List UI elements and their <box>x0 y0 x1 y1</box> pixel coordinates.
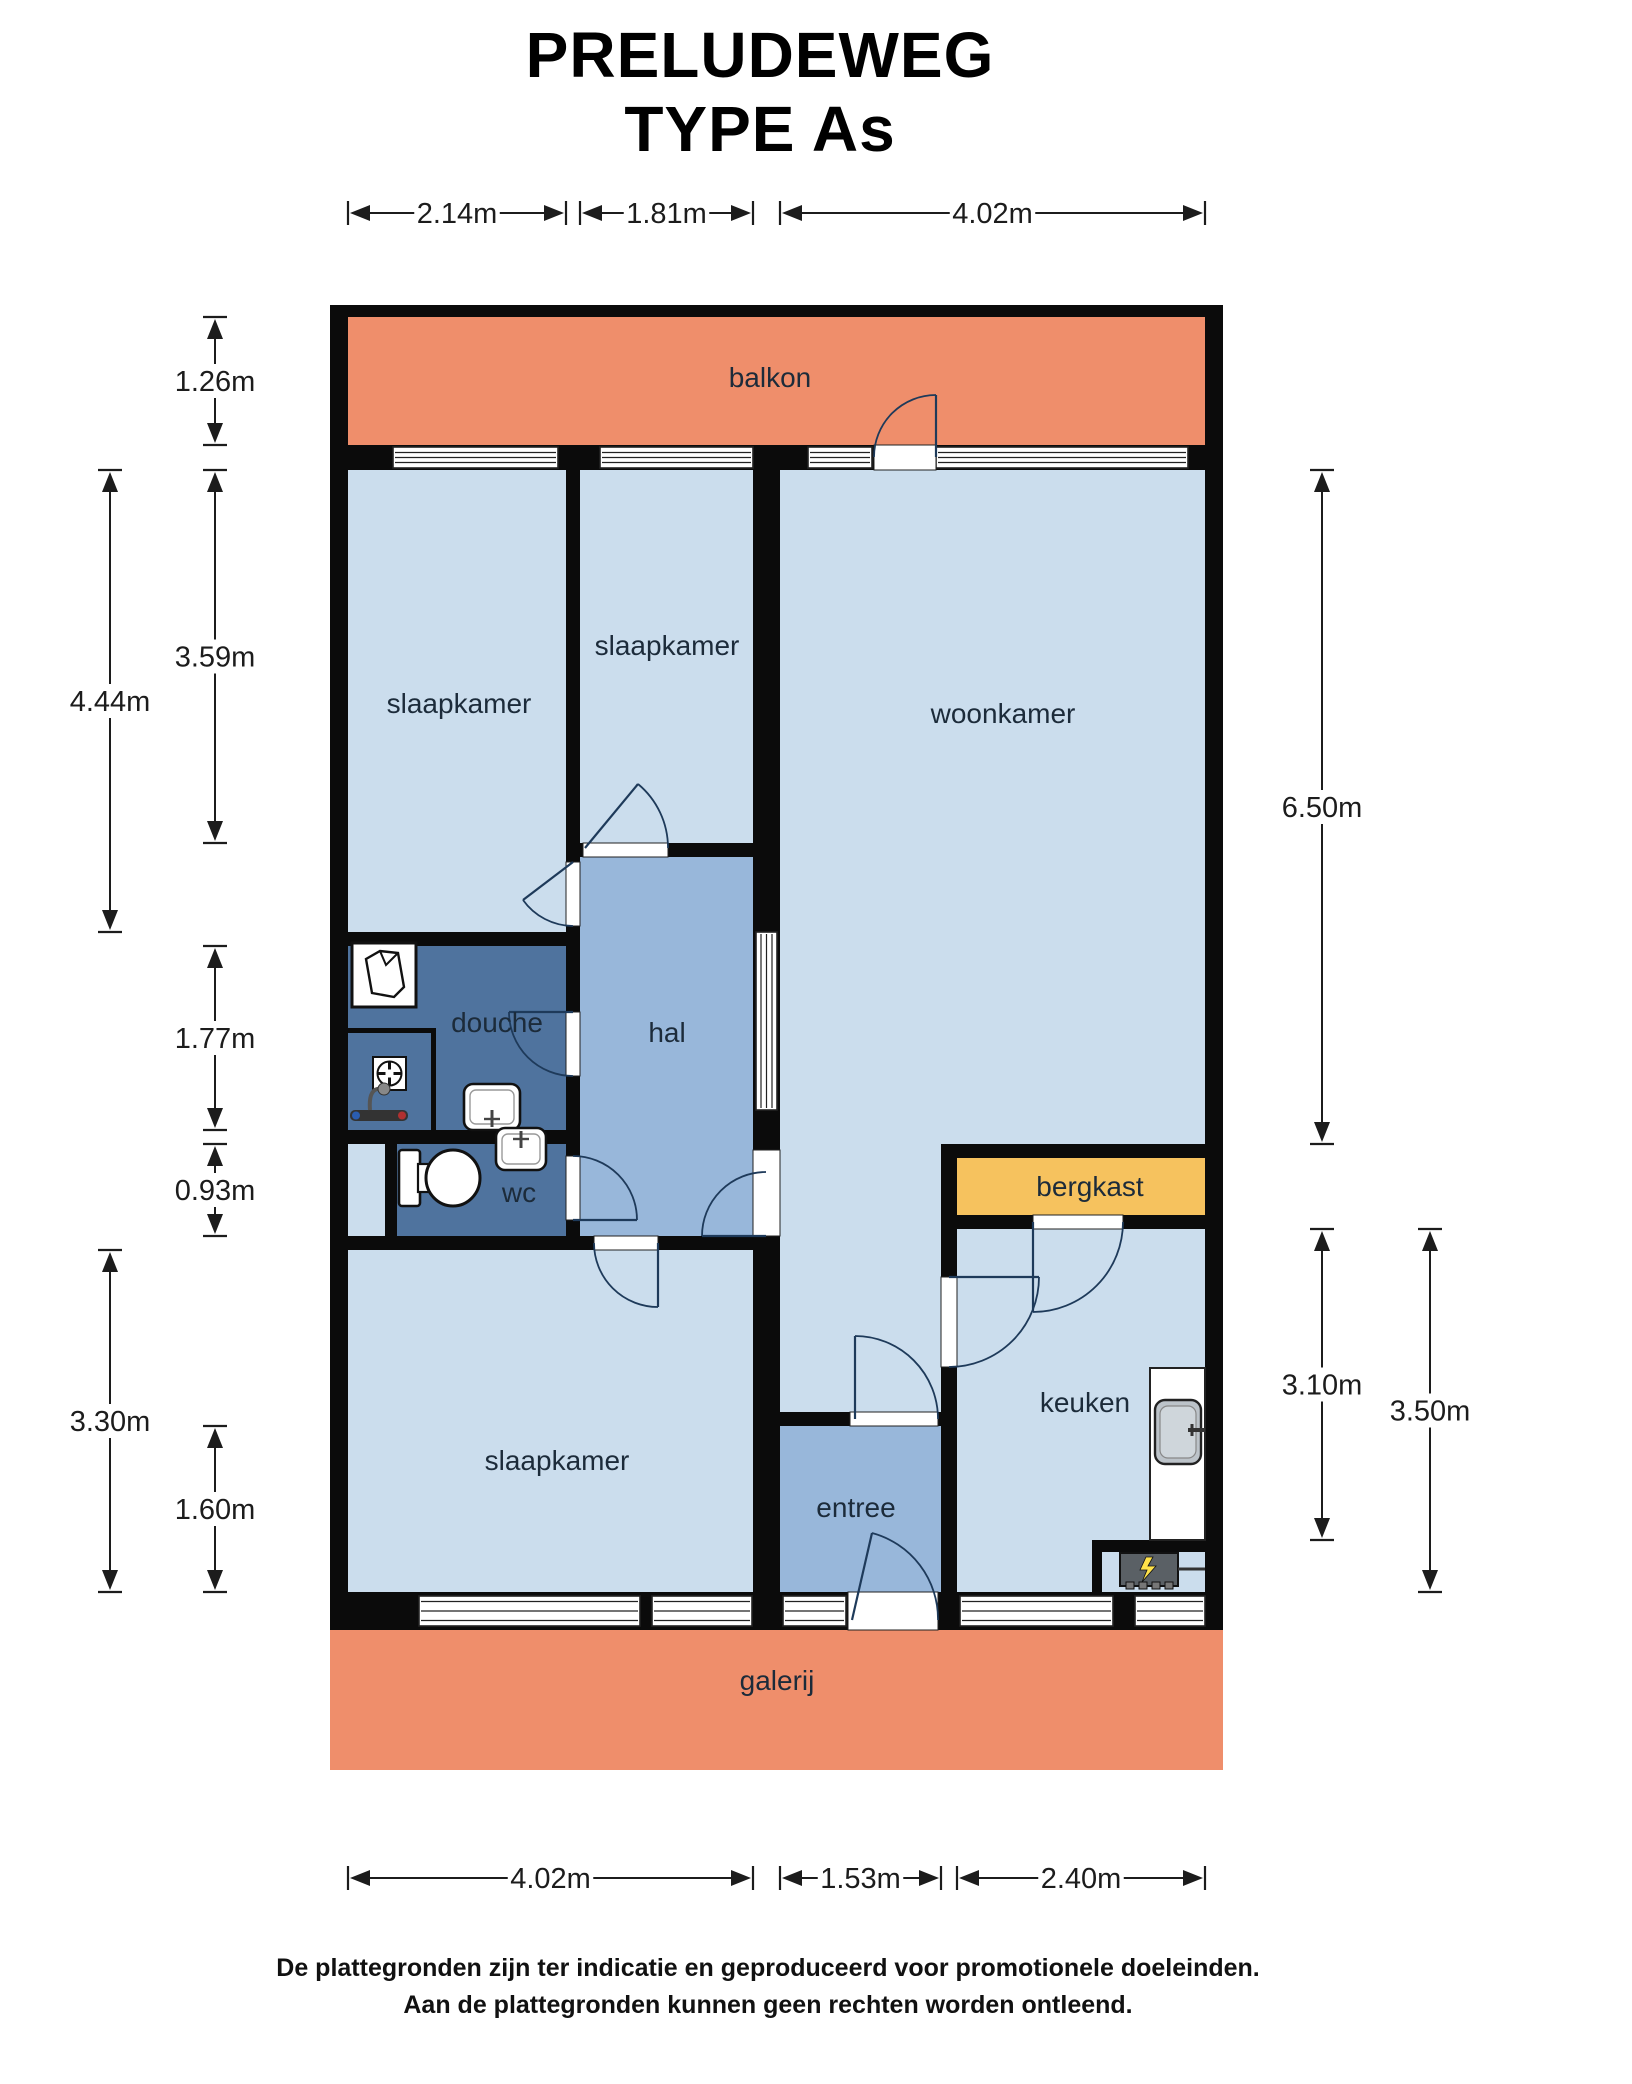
dimension-arrowhead <box>207 319 223 339</box>
dimension-arrowhead <box>350 205 370 221</box>
dimension-arrowhead <box>1422 1231 1438 1251</box>
dimension-label: 3.59m <box>175 642 256 674</box>
stove-knob <box>1165 1582 1173 1589</box>
dimension-arrowhead <box>1314 472 1330 492</box>
door-opening <box>583 843 668 857</box>
dimension-arrowhead <box>731 1870 751 1886</box>
label-keuken: keuken <box>1040 1387 1130 1418</box>
dimension-label: 2.14m <box>417 198 498 230</box>
dimension-label: 1.77m <box>175 1023 256 1055</box>
mixer-hot-cap <box>398 1112 406 1120</box>
dimension-label: 1.60m <box>175 1494 256 1526</box>
dimension-arrowhead <box>102 472 118 492</box>
wall <box>431 1028 436 1130</box>
door-opening <box>874 445 936 470</box>
wall <box>1205 305 1223 1630</box>
dimension-label: 3.30m <box>70 1406 151 1438</box>
dimension-label: 4.02m <box>952 198 1033 230</box>
door-opening <box>941 1277 957 1367</box>
disclaimer: De plattegronden zijn ter indicatie en g… <box>0 1950 1536 2024</box>
label-entree: entree <box>816 1492 895 1523</box>
wall <box>1092 1540 1205 1552</box>
dimension-arrowhead <box>782 1870 802 1886</box>
mixer-head <box>378 1083 390 1095</box>
dimension-arrowhead <box>207 948 223 968</box>
dimension-arrowhead <box>207 472 223 492</box>
door-opening <box>566 1012 580 1076</box>
floorplan-page: PRELUDEWEG TYPE As 2.14m1.81m4.02m4.02m1… <box>0 0 1632 2084</box>
label-hal: hal <box>648 1017 685 1048</box>
dimension-label: 1.26m <box>175 366 256 398</box>
dimension-arrowhead <box>1183 205 1203 221</box>
dimension-arrowhead <box>959 1870 979 1886</box>
dimension-arrowhead <box>1314 1231 1330 1251</box>
wall <box>566 470 580 862</box>
dimension-arrowhead <box>919 1870 939 1886</box>
dimension-arrowhead <box>731 205 751 221</box>
wall <box>753 470 780 932</box>
label-woonkamer: woonkamer <box>930 698 1076 729</box>
label-slaapkamer-midden: slaapkamer <box>595 630 740 661</box>
dimension-arrowhead <box>207 1570 223 1590</box>
label-slaapkamer-onder: slaapkamer <box>485 1445 630 1476</box>
dimension-arrowhead <box>207 1428 223 1448</box>
dimension-label: 2.40m <box>1041 1863 1122 1895</box>
dimension-label: 1.81m <box>626 198 707 230</box>
wall <box>658 1236 780 1250</box>
dimension-label: 0.93m <box>175 1175 256 1207</box>
dimension-label: 3.10m <box>1282 1370 1363 1402</box>
toilet-bowl <box>426 1150 480 1206</box>
dimension-arrowhead <box>207 1214 223 1234</box>
wall <box>330 1236 594 1250</box>
toilet-tank <box>399 1150 420 1206</box>
label-galerij: galerij <box>740 1665 815 1696</box>
dimension-arrowhead <box>102 910 118 930</box>
dimension-arrowhead <box>544 205 564 221</box>
dimension-label: 4.44m <box>70 686 151 718</box>
stove-knob <box>1126 1582 1134 1589</box>
door-opening <box>1033 1215 1123 1229</box>
wall <box>668 843 753 857</box>
dimension-label: 3.50m <box>1390 1396 1471 1428</box>
room-galerij <box>330 1630 1223 1770</box>
stove-knob <box>1152 1582 1160 1589</box>
stove-knob <box>1139 1582 1147 1589</box>
door-opening <box>566 1156 580 1220</box>
wall <box>348 1028 436 1033</box>
wall <box>941 1367 957 1592</box>
dimension-arrowhead <box>1422 1570 1438 1590</box>
room-slaapkamer-onder <box>348 1250 753 1592</box>
wall <box>941 1215 1033 1229</box>
dimension-arrowhead <box>582 205 602 221</box>
floor-plan-drawing: 2.14m1.81m4.02m4.02m1.53m2.40m4.44m3.30m… <box>0 0 1632 2084</box>
dimension-arrowhead <box>207 423 223 443</box>
dimension-label: 6.50m <box>1282 792 1363 824</box>
door-opening <box>753 1150 780 1236</box>
dimension-arrowhead <box>207 1108 223 1128</box>
wall <box>941 1144 1205 1158</box>
label-balkon: balkon <box>729 362 812 393</box>
wall <box>330 305 348 1630</box>
label-wc: wc <box>501 1177 536 1208</box>
label-bergkast: bergkast <box>1036 1171 1144 1202</box>
disclaimer-line2: Aan de plattegronden kunnen geen rechten… <box>0 1987 1536 2024</box>
wall <box>941 1144 957 1277</box>
mixer-cold-cap <box>352 1112 360 1120</box>
wall <box>385 1144 397 1236</box>
dimension-arrowhead <box>207 1146 223 1166</box>
dimension-arrowhead <box>1314 1518 1330 1538</box>
dimension-arrowhead <box>350 1870 370 1886</box>
wall <box>330 305 1223 317</box>
door-opening <box>850 1412 938 1426</box>
dimension-arrowhead <box>1314 1122 1330 1142</box>
label-slaapkamer-links: slaapkamer <box>387 688 532 719</box>
wall <box>566 1220 580 1236</box>
dimension-arrowhead <box>1183 1870 1203 1886</box>
door-opening <box>594 1236 658 1250</box>
label-douche: douche <box>451 1007 543 1038</box>
dimension-arrowhead <box>207 821 223 841</box>
wall <box>753 1236 780 1592</box>
wall <box>780 1412 850 1426</box>
dimension-arrowhead <box>102 1252 118 1272</box>
door-opening <box>848 1592 938 1630</box>
dimension-label: 1.53m <box>820 1863 901 1895</box>
disclaimer-line1: De plattegronden zijn ter indicatie en g… <box>0 1950 1536 1987</box>
dimension-arrowhead <box>782 205 802 221</box>
room-leiding-niche <box>348 1144 385 1236</box>
wall <box>1123 1215 1205 1229</box>
wall <box>753 1110 780 1150</box>
wall <box>566 843 583 857</box>
wall <box>1092 1540 1102 1592</box>
dimension-label: 4.02m <box>510 1863 591 1895</box>
dimension-arrowhead <box>102 1570 118 1590</box>
door-opening <box>566 862 580 926</box>
